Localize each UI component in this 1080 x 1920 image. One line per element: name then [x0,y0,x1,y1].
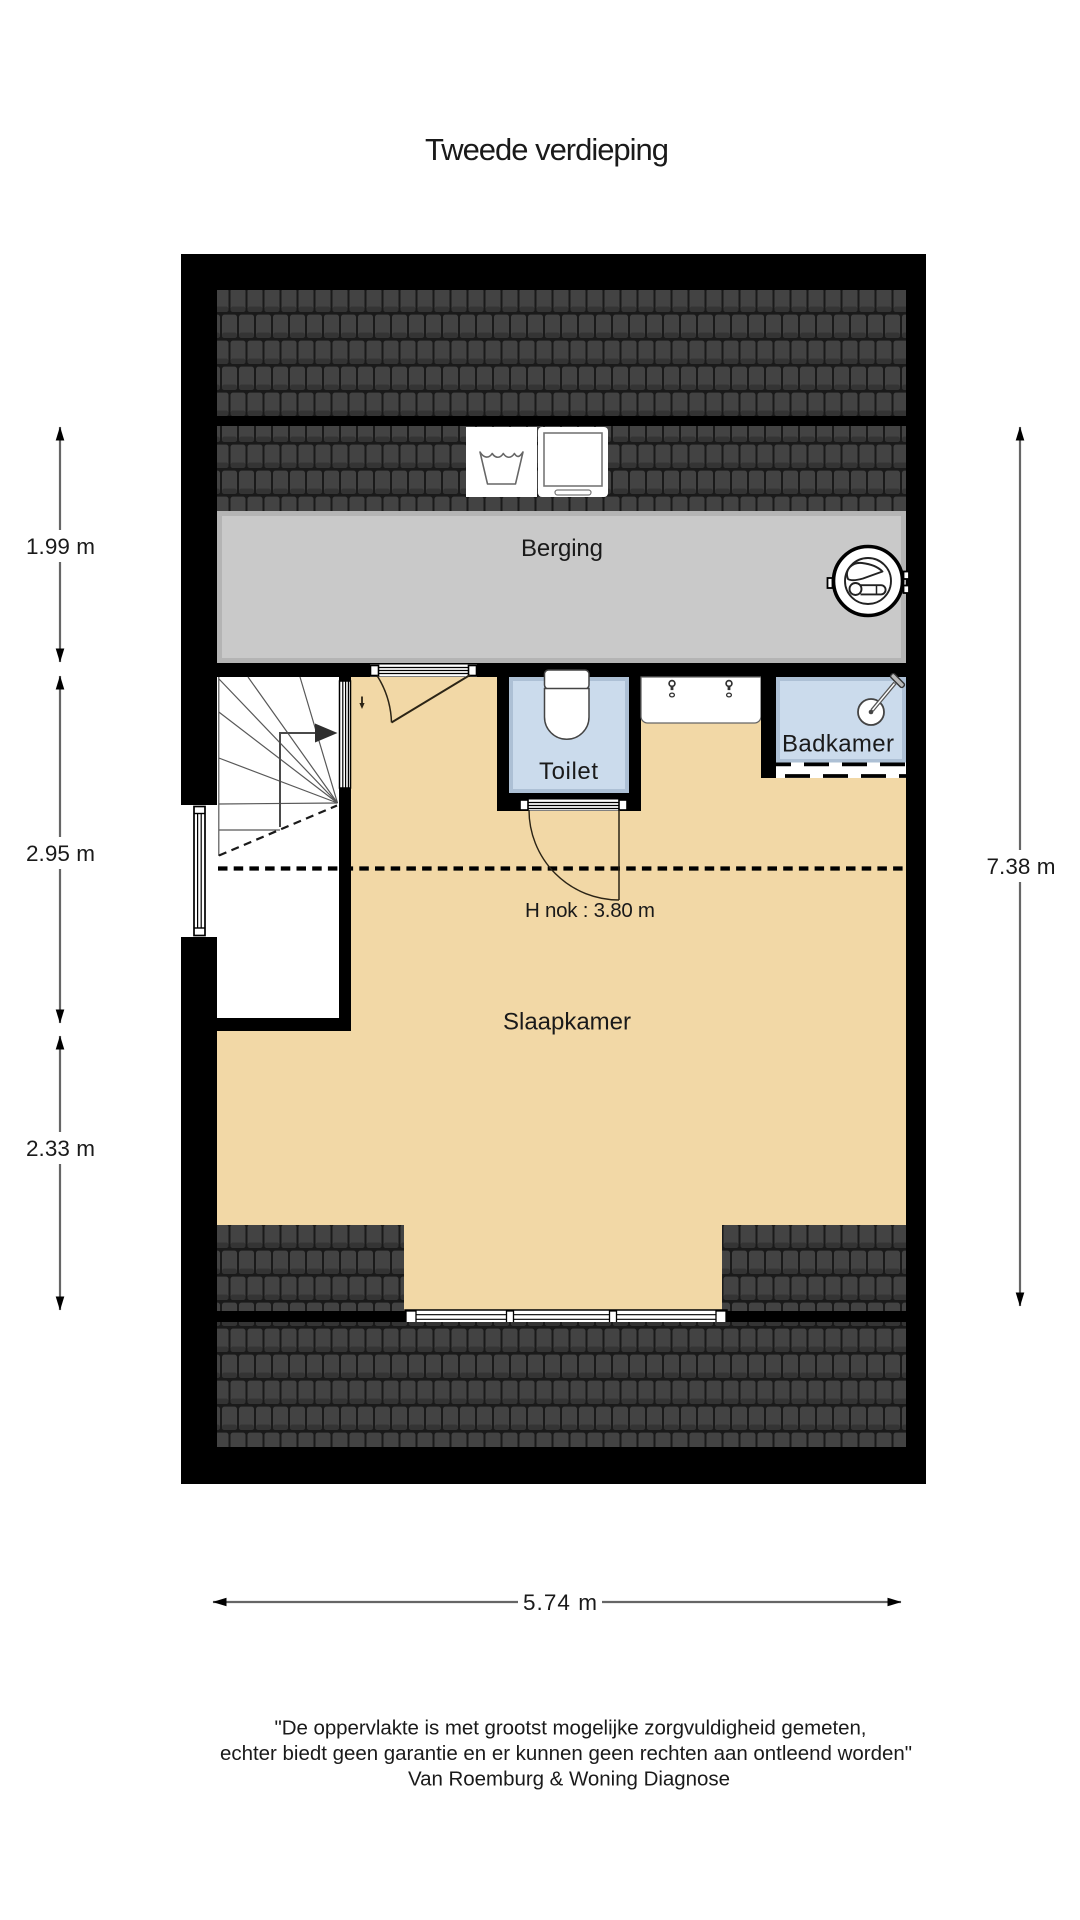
svg-text:Toilet: Toilet [539,758,598,785]
svg-text:Berging: Berging [521,535,603,562]
svg-text:5.74 m: 5.74 m [523,1590,597,1615]
svg-text:echter biedt geen garantie en: echter biedt geen garantie en er kunnen … [220,1742,912,1765]
svg-text:Van Roemburg & Woning Diagnose: Van Roemburg & Woning Diagnose [408,1768,730,1791]
svg-text:7.38 m: 7.38 m [987,854,1056,879]
svg-text:1.99 m: 1.99 m [26,534,95,559]
svg-text:Tweede verdieping: Tweede verdieping [425,132,669,167]
svg-text:2.33 m: 2.33 m [26,1136,95,1161]
svg-text:2.95 m: 2.95 m [26,841,95,866]
svg-text:Badkamer: Badkamer [782,731,894,758]
svg-text:"De oppervlakte is met grootst: "De oppervlakte is met grootst mogelijke… [275,1717,867,1740]
svg-text:H nok : 3.80 m: H nok : 3.80 m [525,899,655,922]
svg-text:Slaapkamer: Slaapkamer [503,1009,631,1036]
